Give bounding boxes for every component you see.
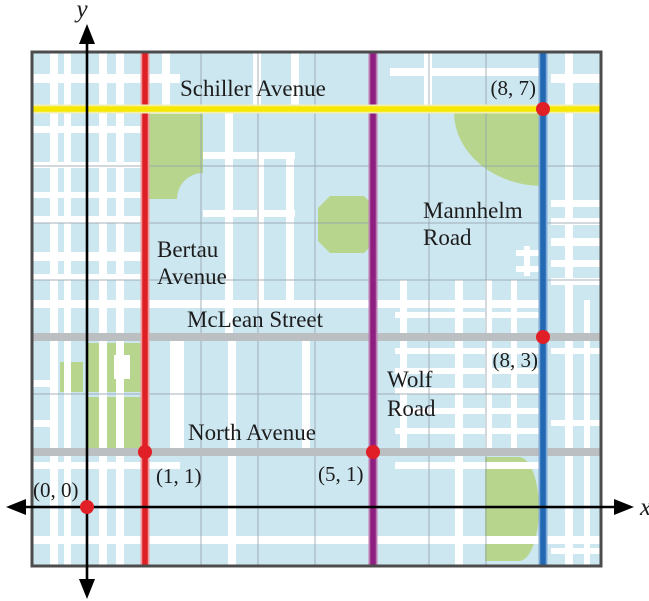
wolf-road-label-line1: Wolf bbox=[387, 367, 433, 392]
coord-label-5-1: (5, 1) bbox=[318, 462, 364, 486]
park-west-small bbox=[60, 362, 83, 392]
park-notch-patch bbox=[177, 173, 229, 225]
bertau-avenue-label-line1: Bertau bbox=[157, 237, 219, 262]
y-axis-label: y bbox=[73, 0, 88, 23]
x-axis-right-arrow bbox=[614, 499, 634, 515]
map-canvas: Schiller Avenue Bertau Avenue McLean Str… bbox=[0, 0, 649, 601]
park-half-ellipse-southeast bbox=[485, 457, 539, 561]
bertau-avenue-label-line2: Avenue bbox=[157, 264, 227, 289]
point-5-1 bbox=[366, 445, 380, 459]
mannhelm-road-label-line2: Road bbox=[423, 225, 472, 250]
schiller-avenue-label: Schiller Avenue bbox=[180, 76, 326, 101]
coord-label-0-0: (0, 0) bbox=[33, 478, 79, 502]
north-avenue-label: North Avenue bbox=[188, 420, 316, 445]
y-axis-bottom-arrow bbox=[79, 579, 95, 599]
point-8-7 bbox=[536, 102, 550, 116]
mannhelm-road-label-line1: Mannhelm bbox=[423, 198, 523, 223]
coord-label-1-1: (1, 1) bbox=[156, 464, 202, 488]
point-1-1 bbox=[138, 445, 152, 459]
park-octagon bbox=[318, 196, 376, 253]
x-axis-left-arrow bbox=[6, 499, 26, 515]
y-axis-top-arrow bbox=[79, 24, 95, 44]
coord-label-8-3: (8, 3) bbox=[493, 348, 539, 372]
wolf-road-label-line2: Road bbox=[387, 396, 436, 421]
mclean-street-label: McLean Street bbox=[187, 307, 324, 332]
street-map-figure: Schiller Avenue Bertau Avenue McLean Str… bbox=[0, 0, 649, 601]
coord-label-8-7: (8, 7) bbox=[491, 76, 537, 100]
point-0-0 bbox=[80, 500, 94, 514]
point-8-3 bbox=[536, 330, 550, 344]
x-axis-label: x bbox=[639, 494, 649, 521]
